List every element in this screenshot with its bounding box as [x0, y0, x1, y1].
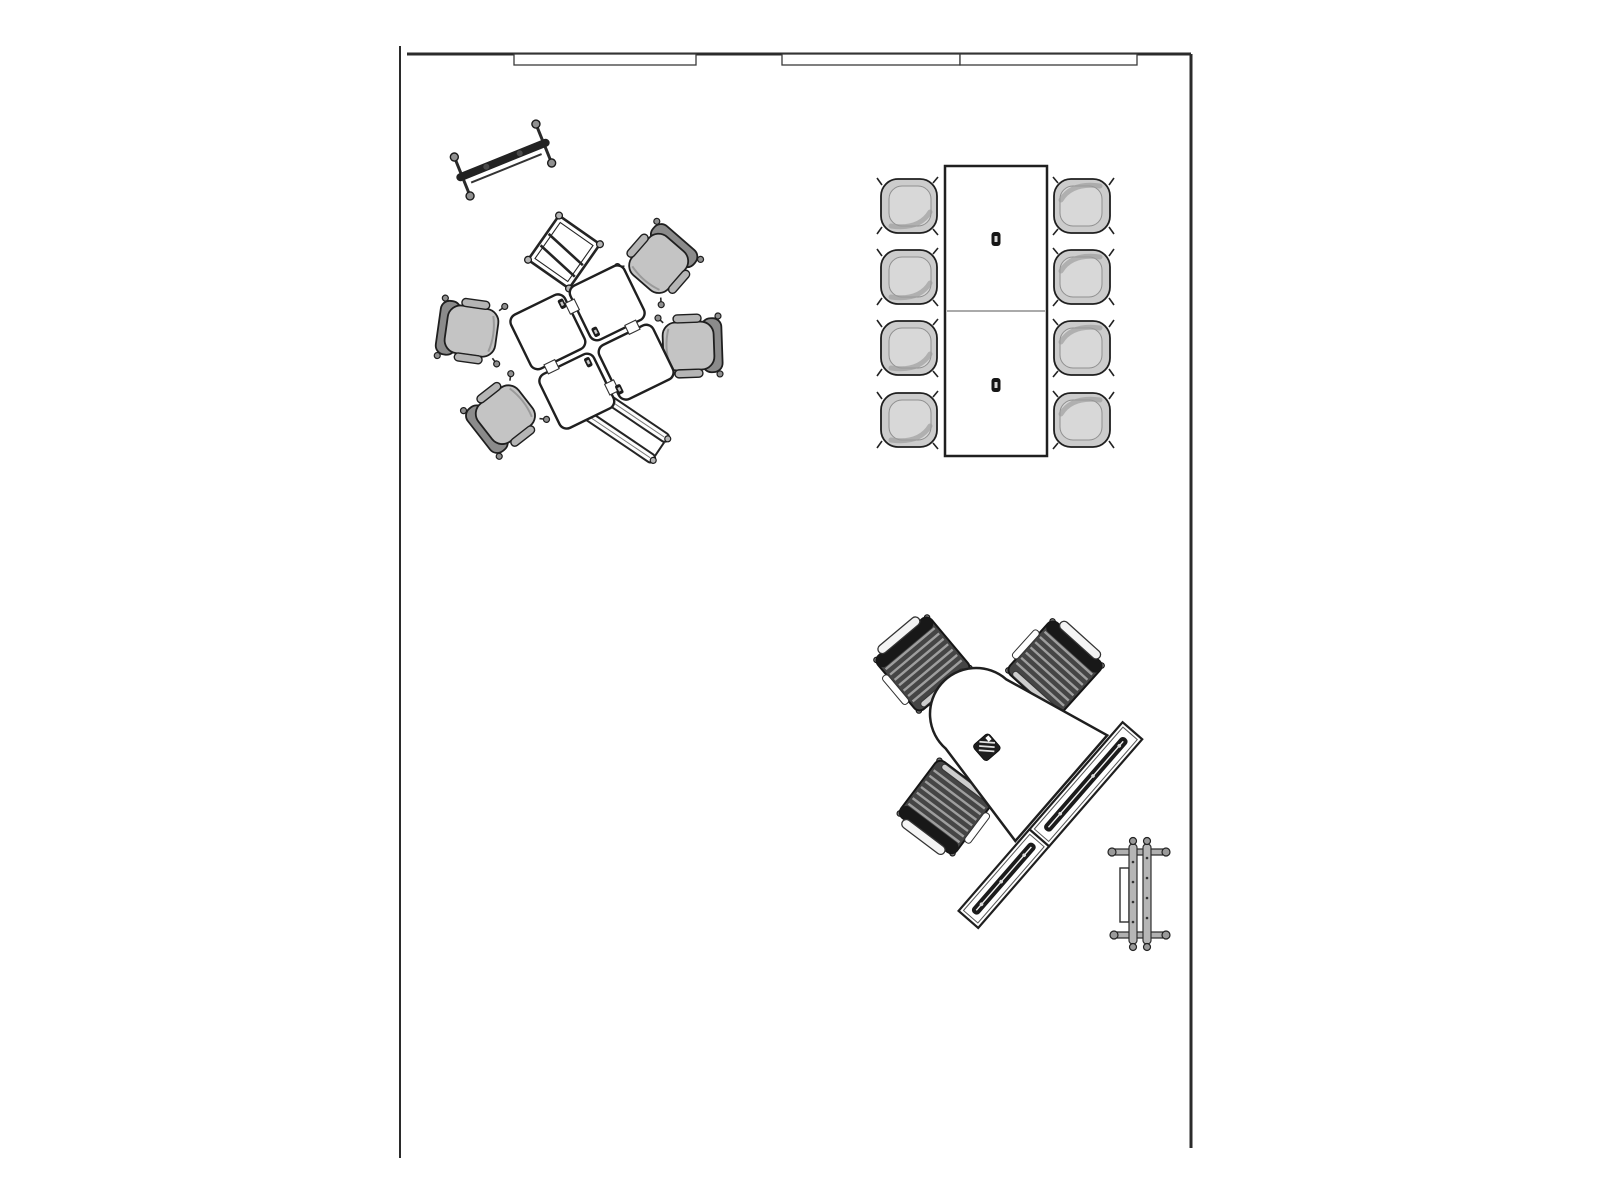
furniture-layer: [434, 118, 1170, 950]
conference-chair-5[interactable]: [1053, 177, 1114, 235]
window-layer: [514, 54, 1137, 65]
conference-chair-3[interactable]: [877, 319, 938, 377]
conference-chair-4[interactable]: [877, 391, 938, 449]
conference-chair-1[interactable]: [877, 177, 938, 235]
window-panel-3: [960, 54, 1137, 65]
conference-chair-6[interactable]: [1053, 248, 1114, 306]
floor-plan: [0, 0, 1600, 1200]
window-panel-1: [514, 54, 696, 65]
mobile-rack[interactable]: [447, 118, 558, 202]
conference-chair-7[interactable]: [1053, 319, 1114, 377]
task-chair-2[interactable]: [434, 295, 508, 368]
task-chair-4[interactable]: [459, 369, 550, 460]
conference-table[interactable]: [945, 166, 1047, 456]
floor-plan-canvas: [0, 0, 1600, 1200]
window-panel-2: [782, 54, 960, 65]
conference-chair-8[interactable]: [1053, 391, 1114, 449]
conference-chair-2[interactable]: [877, 248, 938, 306]
mobile-cart[interactable]: [1108, 838, 1170, 951]
